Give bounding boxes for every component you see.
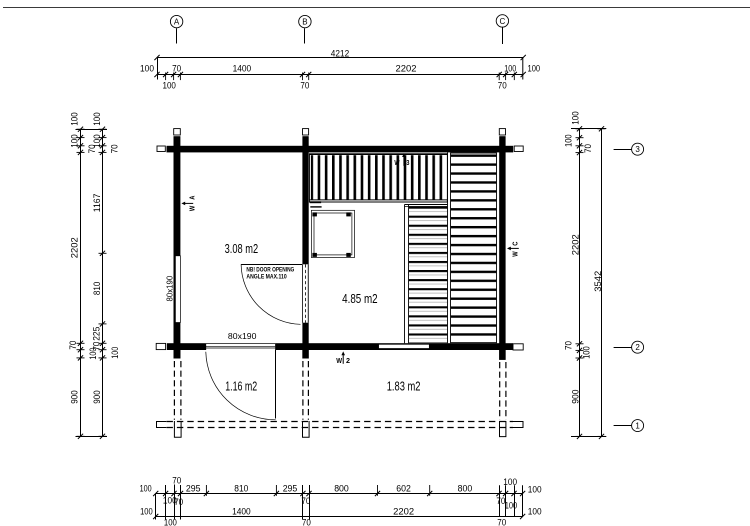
svg-text:100: 100 xyxy=(164,517,177,526)
svg-text:70: 70 xyxy=(172,64,181,74)
svg-text:800: 800 xyxy=(334,483,349,493)
svg-text:100: 100 xyxy=(140,506,153,516)
svg-text:70: 70 xyxy=(172,476,181,486)
svg-text:100: 100 xyxy=(92,134,102,147)
svg-text:1400: 1400 xyxy=(233,64,252,74)
svg-text:100: 100 xyxy=(505,500,517,510)
svg-text:810: 810 xyxy=(234,483,248,493)
svg-text:4212: 4212 xyxy=(331,49,349,59)
svg-text:70: 70 xyxy=(564,341,574,350)
svg-text:100: 100 xyxy=(140,483,152,493)
svg-text:70: 70 xyxy=(174,497,183,507)
svg-text:2: 2 xyxy=(635,343,640,352)
svg-text:W: W xyxy=(512,251,519,257)
svg-text:ANGLE MAX.110: ANGLE MAX.110 xyxy=(246,274,287,281)
svg-text:100: 100 xyxy=(582,346,592,359)
svg-text:70: 70 xyxy=(109,144,119,153)
svg-text:810: 810 xyxy=(92,282,102,295)
svg-text:2202: 2202 xyxy=(396,64,417,74)
svg-text:100: 100 xyxy=(528,507,542,517)
svg-text:900: 900 xyxy=(70,390,80,403)
svg-text:70: 70 xyxy=(91,342,101,351)
svg-text:100: 100 xyxy=(528,485,542,495)
svg-text:100: 100 xyxy=(504,64,516,74)
svg-text:100: 100 xyxy=(110,347,120,359)
svg-text:1.16 m2: 1.16 m2 xyxy=(225,379,257,394)
svg-text:1: 1 xyxy=(635,422,640,431)
svg-text:602: 602 xyxy=(396,483,411,493)
svg-text:C: C xyxy=(512,242,519,246)
svg-text:B: B xyxy=(302,18,307,27)
svg-text:W: W xyxy=(189,205,196,211)
svg-text:100: 100 xyxy=(70,112,80,125)
svg-text:100: 100 xyxy=(564,134,574,147)
svg-text:4.85 m2: 4.85 m2 xyxy=(342,291,378,306)
svg-text:295: 295 xyxy=(186,483,201,493)
svg-text:70: 70 xyxy=(583,144,593,153)
svg-text:A: A xyxy=(189,196,196,200)
svg-text:100: 100 xyxy=(70,134,80,147)
svg-text:1400: 1400 xyxy=(232,506,251,516)
svg-text:2202: 2202 xyxy=(570,234,580,255)
svg-text:1.83 m2: 1.83 m2 xyxy=(387,378,421,393)
svg-text:3: 3 xyxy=(635,145,640,154)
svg-text:3.08 m2: 3.08 m2 xyxy=(225,241,259,256)
svg-text:100: 100 xyxy=(163,81,176,91)
svg-text:900: 900 xyxy=(570,389,580,403)
svg-text:100: 100 xyxy=(140,64,154,74)
svg-text:2202: 2202 xyxy=(393,507,414,517)
svg-text:W: W xyxy=(394,160,400,167)
svg-text:295: 295 xyxy=(283,483,298,493)
svg-text:70: 70 xyxy=(497,517,506,526)
svg-text:100: 100 xyxy=(92,112,102,125)
svg-text:70: 70 xyxy=(68,341,78,350)
svg-text:70: 70 xyxy=(301,496,310,506)
svg-text:900: 900 xyxy=(92,390,102,403)
svg-text:70: 70 xyxy=(498,81,507,91)
svg-text:70: 70 xyxy=(302,517,311,526)
svg-text:800: 800 xyxy=(458,483,473,493)
svg-text:3542: 3542 xyxy=(593,271,603,292)
svg-text:A: A xyxy=(174,18,180,27)
svg-text:C: C xyxy=(500,17,506,26)
svg-text:80x190: 80x190 xyxy=(228,331,257,341)
svg-text:70: 70 xyxy=(300,81,309,91)
svg-text:2202: 2202 xyxy=(70,237,80,258)
svg-text:2: 2 xyxy=(346,356,350,365)
svg-text:W: W xyxy=(336,356,342,365)
svg-text:225: 225 xyxy=(91,327,101,341)
svg-text:1167: 1167 xyxy=(92,193,102,212)
svg-text:3: 3 xyxy=(406,160,409,167)
svg-text:100: 100 xyxy=(528,64,541,74)
svg-text:80x190: 80x190 xyxy=(164,276,174,302)
svg-text:100: 100 xyxy=(571,111,581,124)
